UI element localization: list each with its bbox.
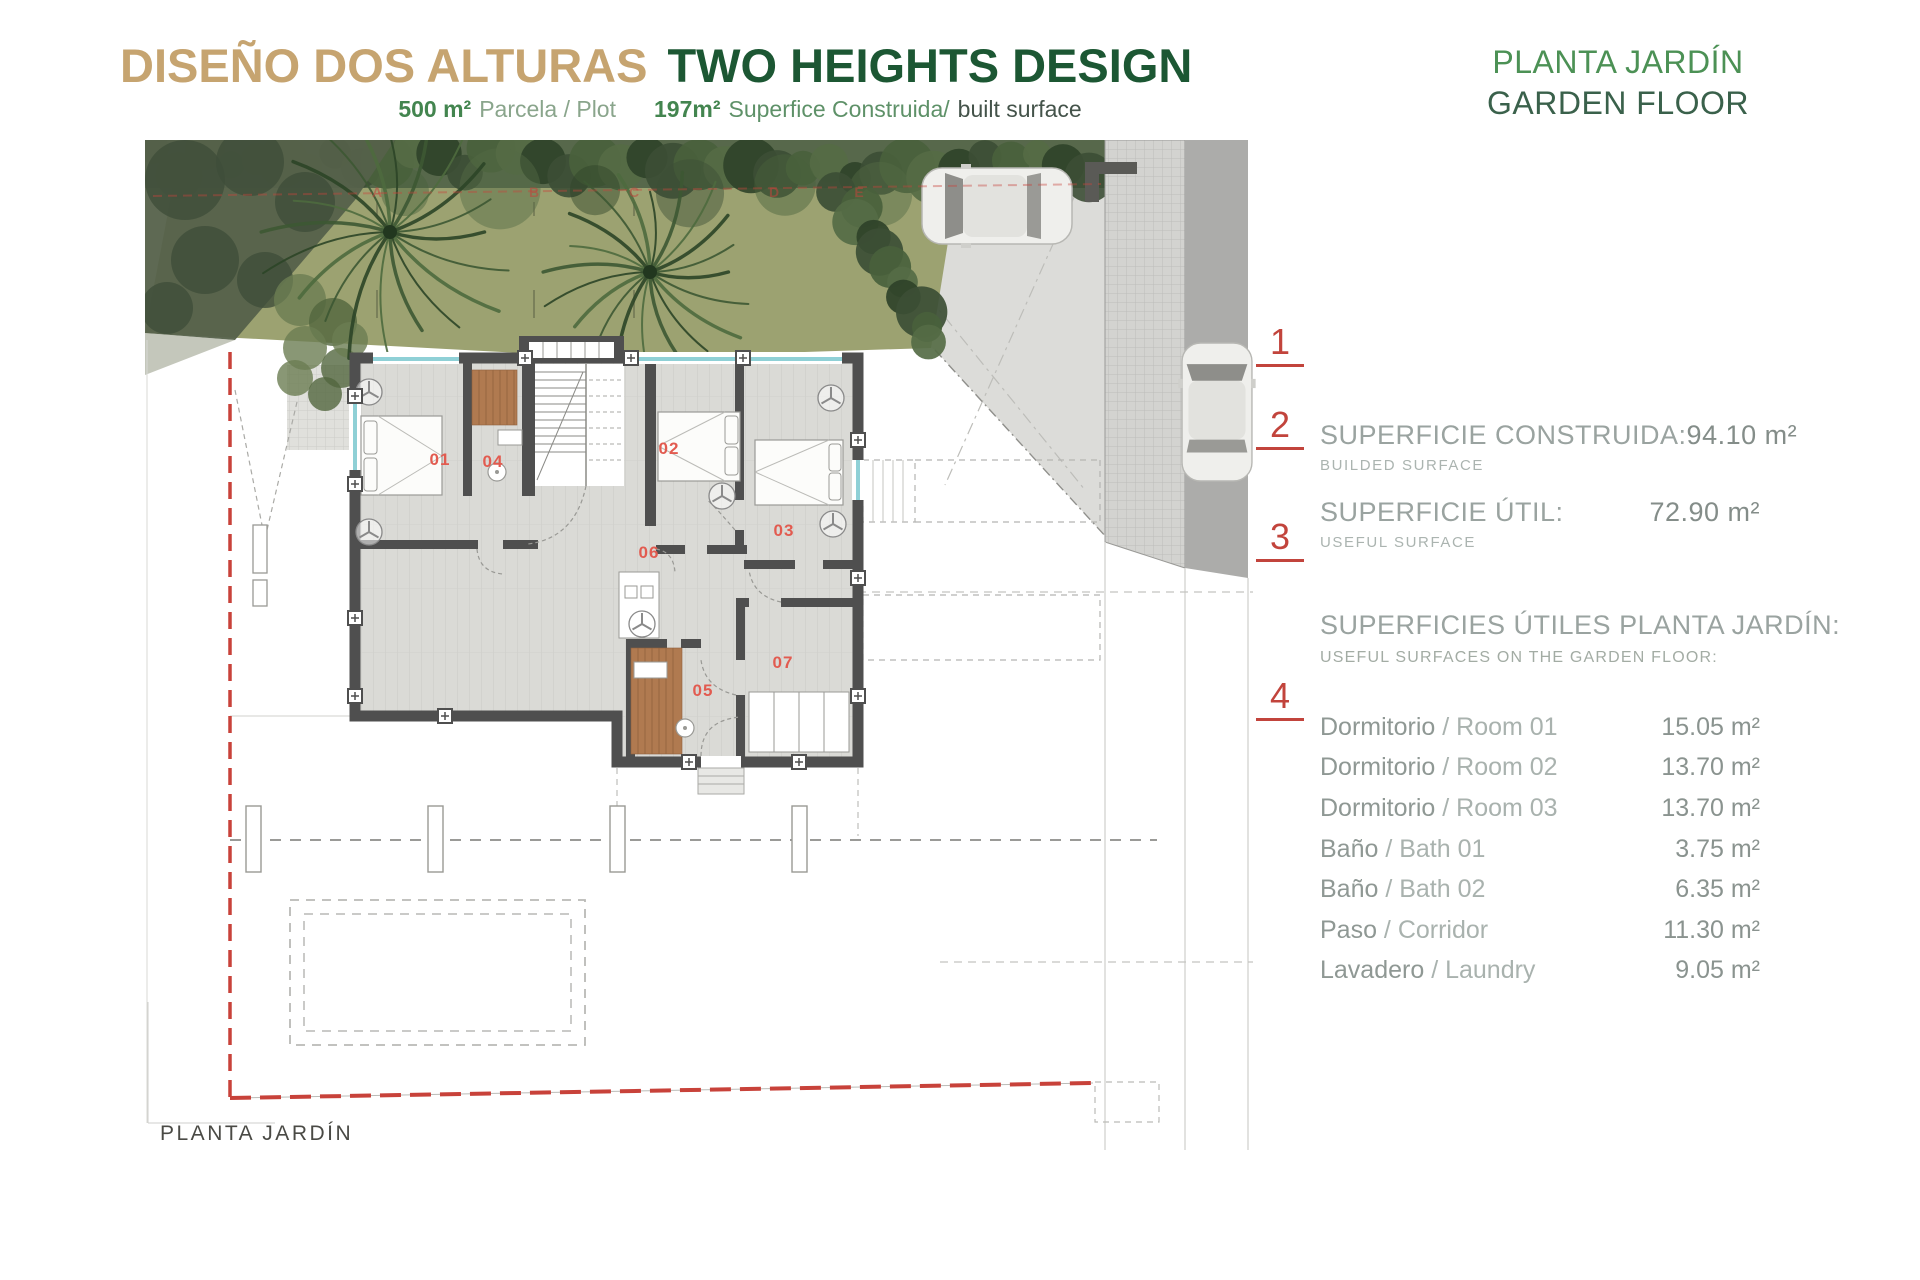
room-label-06: 06: [639, 543, 660, 562]
built-surface-row: SUPERFICIE CONSTRUIDA: 94.10 m²: [1320, 420, 1760, 451]
room-label-05: 05: [693, 681, 714, 700]
surface-list: Dormitorio / Room 0115.05 m²Dormitorio /…: [1320, 707, 1760, 991]
room-label-03: 03: [774, 521, 795, 540]
built-size: 197m² Superfice Construida/ built surfac…: [654, 96, 1082, 123]
pool-outline: [290, 900, 585, 1045]
svg-text:A: A: [372, 184, 382, 200]
plan-caption: PLANTA JARDÍN: [160, 1122, 353, 1146]
plot-size: 500 m² Parcela / Plot: [398, 96, 616, 123]
surface-row: Baño / Bath 013.75 m²: [1320, 829, 1760, 870]
entry-steps: [698, 768, 744, 794]
title-spanish: DISEÑO DOS ALTURAS: [120, 38, 647, 93]
useful-surface-value: 72.90 m²: [1649, 497, 1760, 528]
built-surface-value: 94.10 m²: [1687, 420, 1798, 451]
plot-boundary-bottom: [230, 1083, 1093, 1098]
svg-text:C: C: [629, 184, 639, 200]
plan-sheet: DISEÑO DOS ALTURASTWO HEIGHTS DESIGN 500…: [0, 0, 1920, 1280]
surface-row: Dormitorio / Room 0313.70 m²: [1320, 788, 1760, 829]
surfaces-list-subtitle: USEFUL SURFACES ON THE GARDEN FLOOR:: [1320, 649, 1718, 667]
page-title: DISEÑO DOS ALTURASTWO HEIGHTS DESIGN: [120, 38, 1192, 93]
sink: [498, 430, 522, 445]
floor-plan: ABCDE: [145, 140, 1260, 1165]
useful-surface-sublabel: USEFUL SURFACE: [1320, 534, 1476, 551]
car-top-view: [922, 164, 1072, 248]
useful-surface-label: SUPERFICIE ÚTIL:: [1320, 497, 1564, 528]
index-marker-1: 1: [1256, 324, 1304, 367]
tiled-walkway: [1105, 140, 1185, 568]
house: 01040203060507: [348, 336, 865, 794]
index-marker-3: 3: [1256, 519, 1304, 562]
car-street-top-view: [1178, 343, 1255, 481]
room-label-04: 04: [483, 452, 504, 471]
floor-title-spanish: PLANTA JARDÍN: [1482, 42, 1754, 83]
surface-row: Dormitorio / Room 0115.05 m²: [1320, 707, 1760, 748]
built-surface-label: SUPERFICIE CONSTRUIDA:: [1320, 420, 1687, 451]
surface-row: Paso / Corridor11.30 m²: [1320, 910, 1760, 951]
svg-text:D: D: [769, 184, 779, 200]
index-marker-4: 4: [1256, 678, 1304, 721]
index-marker-2: 2: [1256, 407, 1304, 450]
surface-row: Baño / Bath 026.35 m²: [1320, 869, 1760, 910]
surface-row: Dormitorio / Room 0213.70 m²: [1320, 748, 1760, 789]
subtitle: 500 m² Parcela / Plot 197m² Superfice Co…: [440, 96, 1040, 123]
svg-text:B: B: [529, 184, 539, 200]
built-surface-sublabel: BUILDED SURFACE: [1320, 457, 1484, 474]
floor-plan-svg: ABCDE: [145, 140, 1260, 1165]
title-english: TWO HEIGHTS DESIGN: [667, 38, 1192, 93]
room-label-01: 01: [430, 450, 451, 469]
useful-surface-row: SUPERFICIE ÚTIL: 72.90 m²: [1320, 497, 1760, 528]
stairwell: [535, 364, 624, 486]
surface-row: Lavadero / Laundry9.05 m²: [1320, 951, 1760, 992]
floor-title: PLANTA JARDÍN GARDEN FLOOR: [1482, 42, 1754, 124]
room-label-07: 07: [773, 653, 794, 672]
surfaces-list-title: SUPERFICIES ÚTILES PLANTA JARDÍN:: [1320, 610, 1840, 641]
svg-text:E: E: [854, 184, 863, 200]
room-label-02: 02: [659, 439, 680, 458]
floor-title-english: GARDEN FLOOR: [1482, 83, 1754, 124]
